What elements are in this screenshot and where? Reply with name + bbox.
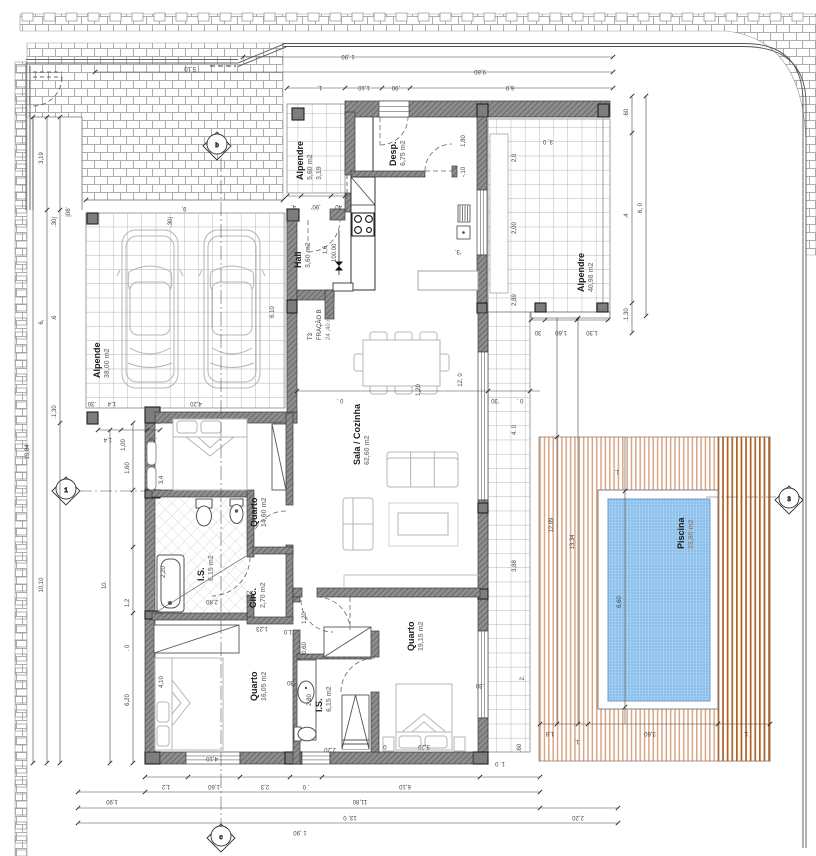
svg-text:6,20: 6,20: [125, 694, 131, 706]
svg-text:9,80: 9,80: [474, 68, 486, 74]
svg-text:3,88: 3,88: [512, 560, 518, 572]
svg-text:1,4: 1,4: [107, 400, 116, 406]
svg-text:.4: .4: [624, 213, 630, 219]
svg-text:2,20: 2,20: [572, 814, 584, 820]
svg-text:1,: 1,: [317, 84, 322, 90]
svg-text:3: 3: [787, 496, 791, 503]
svg-text:1. 0: 1. 0: [494, 760, 505, 766]
svg-text:40,98 m2: 40,98 m2: [588, 262, 595, 292]
svg-text:3,19: 3,19: [316, 166, 323, 180]
svg-text:I.S.: I.S.: [196, 567, 206, 581]
svg-text:1,6: 1,6: [323, 245, 329, 254]
svg-text:4,10: 4,10: [206, 755, 218, 761]
svg-text:4. 0: 4. 0: [512, 424, 518, 435]
svg-text:2,0: 2,0: [512, 153, 518, 162]
svg-text:Piscina: Piscina: [676, 516, 686, 549]
svg-text:6, 0: 6, 0: [638, 202, 644, 213]
svg-text:1,8: 1,8: [545, 730, 554, 736]
svg-text:6,75 m2: 6,75 m2: [400, 140, 407, 166]
svg-text:-.10: -.10: [461, 166, 467, 177]
svg-text:2.: 2.: [520, 675, 526, 680]
svg-text:1.: 1.: [574, 738, 579, 744]
svg-text:0,60: 0,60: [302, 642, 308, 654]
svg-text:5,10: 5,10: [184, 65, 196, 71]
svg-text:.30: .30: [87, 400, 96, 406]
svg-text:2,20: 2,20: [161, 566, 167, 578]
svg-text:1,0: 1,0: [283, 628, 292, 634]
svg-text:1,60: 1,60: [125, 462, 131, 474]
svg-text:3,60 m2: 3,60 m2: [305, 242, 312, 268]
svg-text:6,15 m2: 6,15 m2: [208, 555, 215, 581]
svg-text:3,19: 3,19: [39, 152, 45, 164]
svg-text:12, 0: 12, 0: [458, 373, 464, 387]
svg-text:.30|: .30|: [52, 217, 58, 227]
svg-text:Hall: Hall: [293, 251, 303, 268]
svg-text:1,80: 1,80: [461, 135, 467, 147]
svg-text:1,20: 1,20: [302, 612, 308, 624]
svg-text:3,60: 3,60: [644, 730, 656, 736]
svg-text:. 0: . 0: [125, 644, 131, 651]
svg-text:40': 40': [334, 203, 342, 209]
svg-text:I.S.: I.S.: [314, 698, 324, 712]
svg-text:13, 0: 13, 0: [343, 814, 357, 820]
svg-text:9,: 9,: [181, 205, 186, 211]
svg-text:11,80: 11,80: [352, 798, 367, 804]
svg-text:1.: 1.: [743, 730, 748, 736]
svg-text:2,70 m2: 2,70 m2: [260, 582, 267, 608]
svg-text:3,20: 3,20: [418, 743, 430, 749]
svg-text:1,2: 1,2: [125, 598, 131, 607]
svg-text:1,60: 1,60: [555, 329, 567, 335]
svg-text:FRAÇÃO B: FRAÇÃO B: [316, 309, 323, 340]
svg-text:.30|: .30|: [168, 217, 174, 227]
svg-text:Alpende: Alpende: [92, 342, 102, 378]
svg-text:10,10: 10,10: [39, 577, 45, 593]
svg-text:Desp.: Desp.: [388, 141, 398, 166]
svg-text:1,30: 1,30: [586, 329, 598, 335]
svg-text:1,23: 1,23: [256, 625, 268, 631]
svg-text:14,60 m2: 14,60 m2: [261, 497, 268, 527]
svg-text:13,34: 13,34: [570, 534, 576, 550]
svg-text:,90': ,90': [311, 203, 321, 209]
svg-text:Alpendre: Alpendre: [576, 253, 586, 292]
svg-text:.1,30: .1,30: [52, 405, 58, 419]
svg-text:Quarto: Quarto: [406, 621, 416, 651]
svg-text:T3: T3: [308, 332, 314, 340]
svg-text:.60: .60: [624, 108, 630, 117]
svg-text:19,15 m2: 19,15 m2: [418, 621, 425, 651]
svg-text:19,84: 19,84: [25, 444, 31, 460]
svg-text:.30: .30: [148, 436, 157, 442]
svg-text:1.: 1.: [614, 468, 619, 474]
svg-text:23,80 m2: 23,80 m2: [688, 519, 695, 549]
svg-text:c: c: [219, 834, 223, 841]
svg-text:3, 0: 3, 0: [542, 138, 553, 144]
svg-text:1,00: 1,00: [121, 439, 127, 451]
svg-text:4,10: 4,10: [159, 676, 165, 688]
svg-text:10.: 10.: [102, 580, 108, 589]
svg-text:1,90: 1,90: [106, 798, 118, 804]
svg-text:6,15 m2: 6,15 m2: [326, 686, 333, 712]
svg-text:'4.: '4.: [291, 203, 297, 209]
svg-text:5,60 m2: 5,60 m2: [307, 154, 314, 180]
svg-text:,90: ,90: [391, 84, 400, 90]
svg-text:100.00: 100.00: [332, 243, 338, 262]
svg-text:1,4: 1,4: [103, 436, 112, 442]
svg-text:1,10: 1,10: [358, 84, 370, 90]
svg-text:38,00 m2: 38,00 m2: [104, 348, 111, 378]
svg-text:'30: '30: [490, 397, 498, 403]
svg-text:6,10: 6,10: [399, 783, 411, 789]
svg-text:0 .: 0 .: [516, 397, 523, 403]
svg-text:Alpendre: Alpendre: [295, 141, 305, 180]
svg-text:.6: .6: [52, 315, 58, 321]
svg-text:. 0: . 0: [302, 783, 309, 789]
svg-text:2,20: 2,20: [324, 746, 336, 752]
svg-text:3,4: 3,4: [159, 475, 165, 484]
svg-text:12,89: 12,89: [549, 517, 555, 533]
svg-text:1,60: 1,60: [208, 783, 220, 789]
svg-text:1: 1: [64, 487, 68, 494]
svg-text:.60: .60: [517, 743, 523, 752]
svg-text:6,0: 6,0: [505, 84, 514, 90]
svg-text:.1,30: .1,30: [624, 308, 630, 322]
svg-text:0 .: 0 .: [336, 397, 343, 403]
svg-text:62,60 m2: 62,60 m2: [364, 435, 371, 465]
svg-text:'3.: '3.: [455, 248, 461, 254]
svg-text:6,60: 6,60: [617, 596, 623, 608]
svg-text:'30: '30: [286, 679, 294, 685]
svg-text:24 ,40 m2: 24 ,40 m2: [326, 313, 332, 340]
svg-text:2,00: 2,00: [512, 222, 518, 234]
svg-text:|06': |06': [66, 207, 72, 216]
svg-text:b: b: [215, 142, 219, 149]
svg-text:4,20: 4,20: [190, 400, 202, 406]
svg-text:.30: .30: [475, 682, 484, 688]
svg-text:2,80: 2,80: [206, 598, 218, 604]
svg-text:1 ,90: 1 ,90: [293, 829, 307, 835]
svg-text:2,89: 2,89: [512, 294, 518, 306]
svg-text:2,3: 2,3: [260, 783, 269, 789]
svg-text:Quarto: Quarto: [249, 497, 259, 527]
svg-text:2,80: 2,80: [307, 694, 313, 706]
svg-text:Quarto: Quarto: [249, 671, 259, 701]
svg-text:1,2: 1,2: [161, 783, 170, 789]
svg-text:2,2: 2,2: [247, 590, 253, 599]
svg-text:Sala / Cozinha: Sala / Cozinha: [352, 403, 362, 465]
svg-text:6.10: 6.10: [270, 306, 276, 318]
svg-text:6,: 6,: [39, 319, 45, 324]
svg-text:1 ,90: 1 ,90: [341, 53, 355, 59]
svg-text:16,05 m2: 16,05 m2: [261, 671, 268, 701]
svg-text:1,20: 1,20: [416, 384, 422, 396]
svg-text:30: 30: [534, 329, 541, 335]
